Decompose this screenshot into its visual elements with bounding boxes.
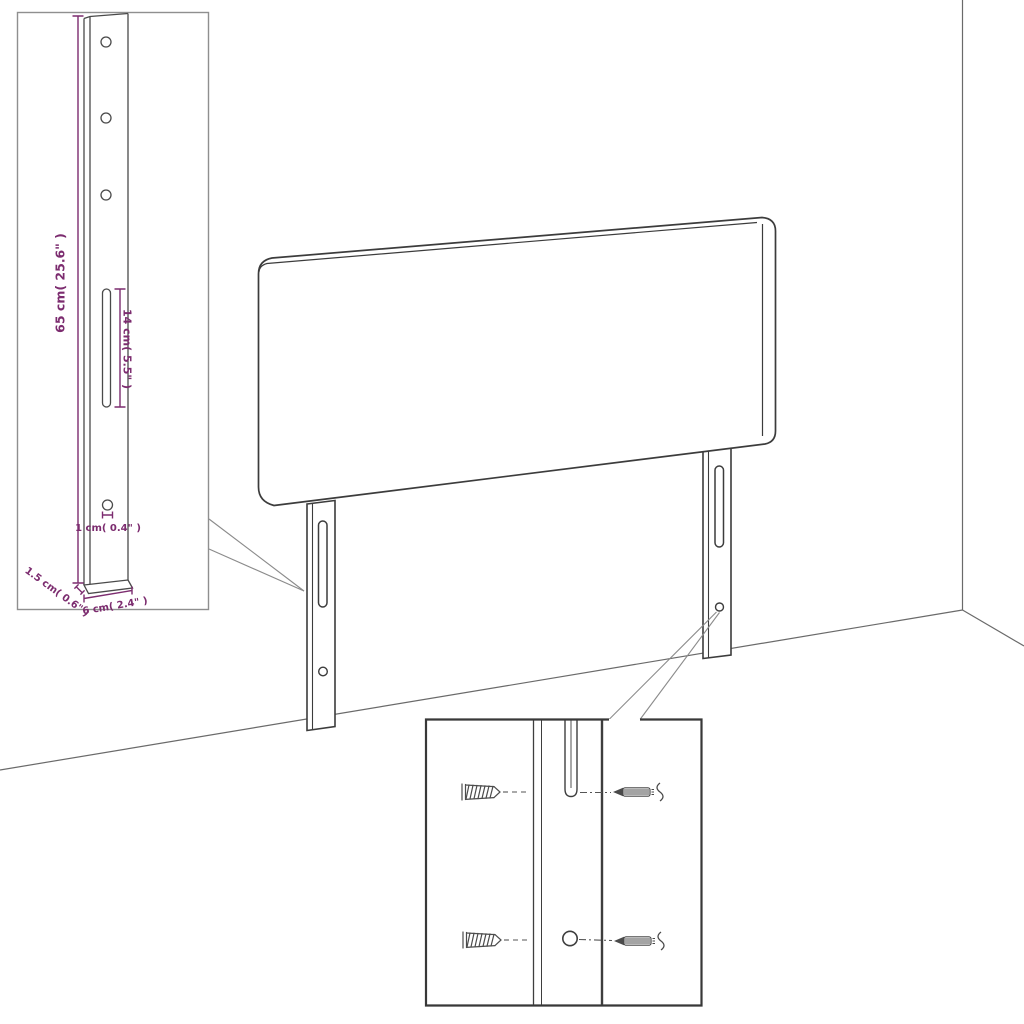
headboard-assembly-diagram: 65 cm( 25.6" ) 14 cm( 5.5" ) 1 cm( 0.4" … [0, 0, 1024, 1024]
headboard-front-face [259, 218, 776, 506]
headboard-panel [259, 218, 776, 506]
left-leg-body [307, 501, 335, 731]
right-leg-body [703, 448, 731, 659]
detail-inset-top-left: 65 cm( 25.6" ) 14 cm( 5.5" ) 1 cm( 0.4" … [18, 13, 209, 620]
floor-line-right [963, 610, 1024, 646]
callout-lines-left [209, 519, 304, 591]
inset-top-left-border [18, 13, 209, 610]
left-leg [307, 501, 335, 731]
right-leg [703, 448, 731, 659]
inset-bottom-fill [425, 719, 702, 1006]
detail-inset-bottom [425, 719, 702, 1006]
label-hole: 1 cm( 0.4" ) [75, 523, 141, 534]
label-slot: 14 cm( 5.5" ) [121, 309, 134, 389]
diagram-canvas: 65 cm( 25.6" ) 14 cm( 5.5" ) 1 cm( 0.4" … [0, 0, 1024, 1024]
label-height: 65 cm( 25.6" ) [53, 233, 68, 333]
